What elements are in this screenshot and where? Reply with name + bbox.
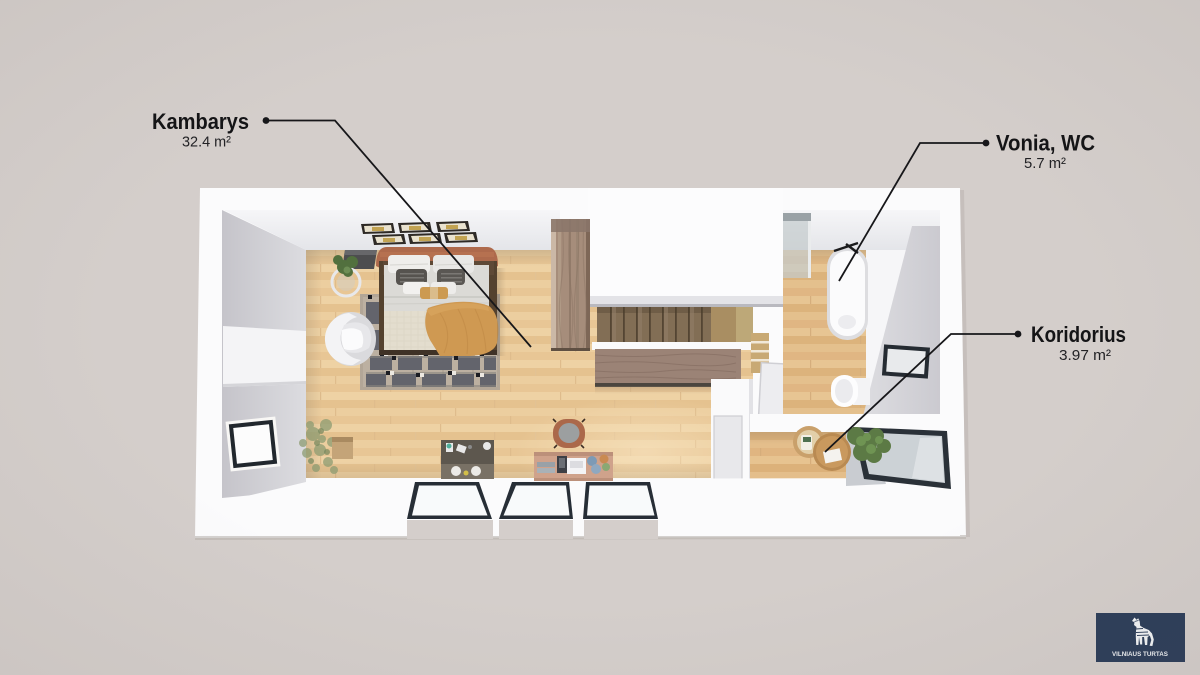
svg-text:3.97 m²: 3.97 m² [1059,347,1111,364]
svg-text:32.4 m²: 32.4 m² [182,134,231,151]
svg-text:5.7 m²: 5.7 m² [1024,155,1066,172]
svg-text:Koridorius: Koridorius [1031,322,1126,347]
svg-text:VILNIAUS TURTAS: VILNIAUS TURTAS [1112,651,1169,658]
svg-text:Vonia, WC: Vonia, WC [996,131,1095,156]
svg-text:Kambarys: Kambarys [152,109,249,134]
